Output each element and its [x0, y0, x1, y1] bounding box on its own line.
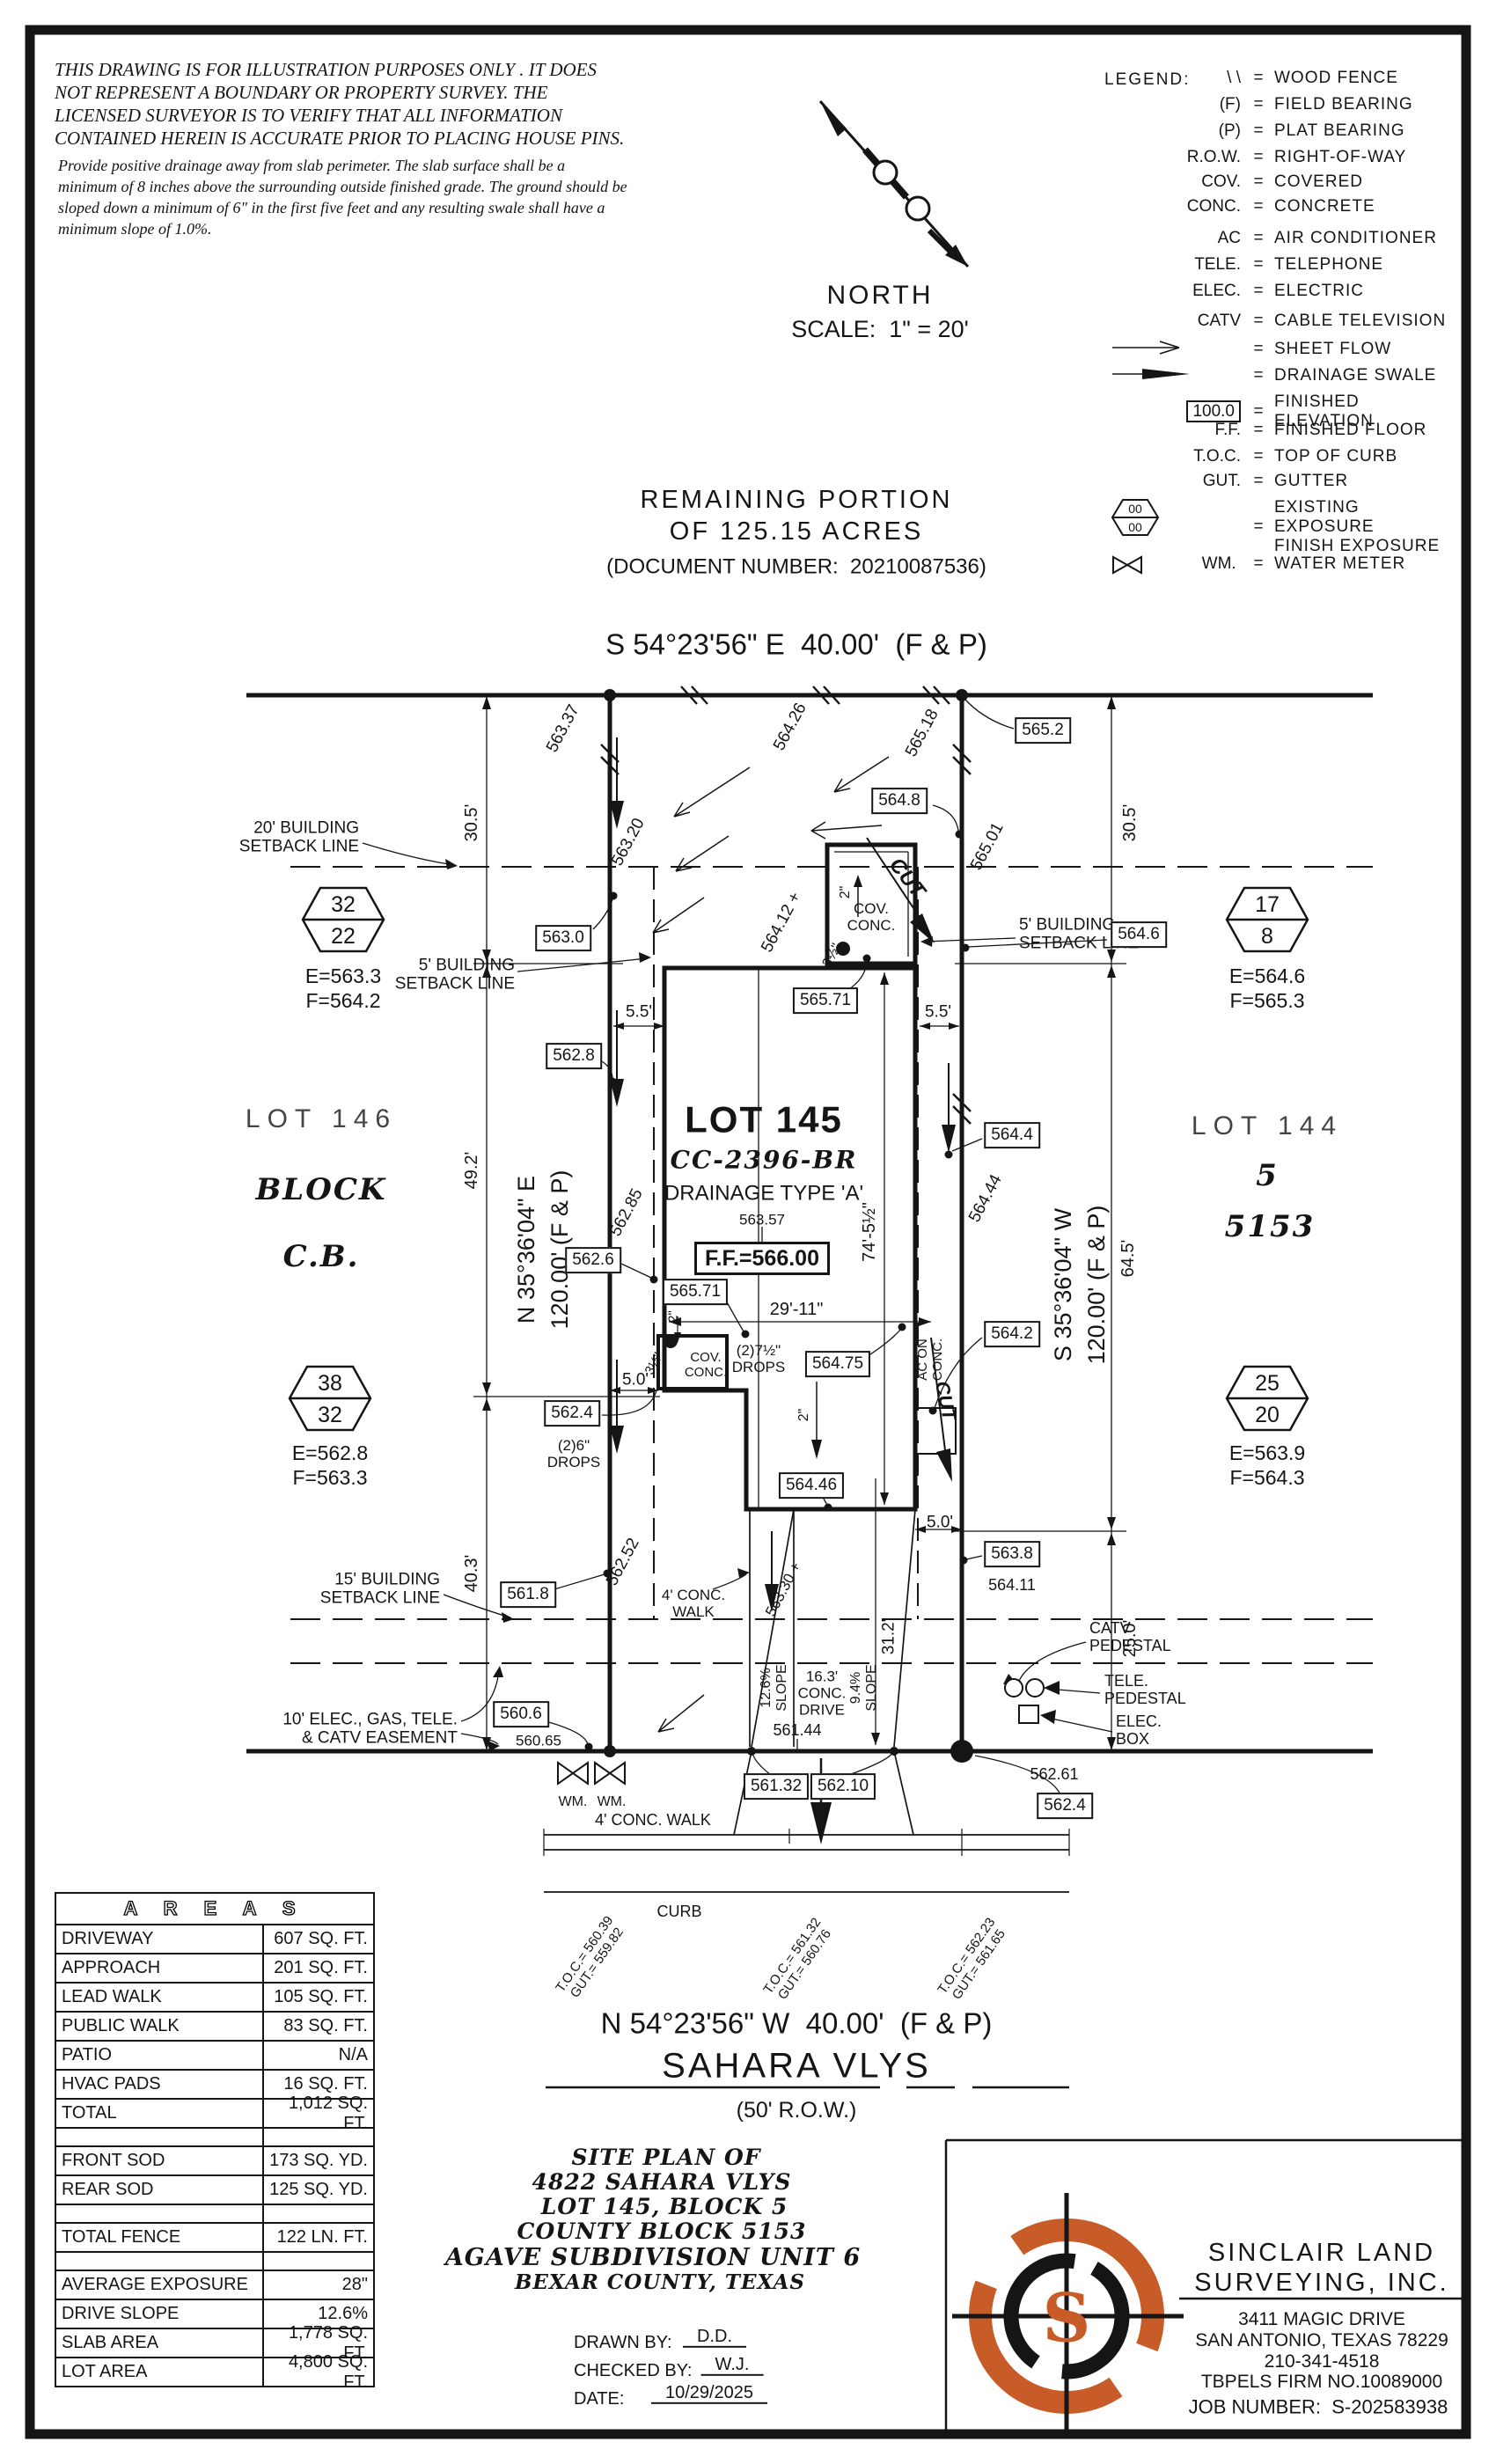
areas-row-value: 28" — [264, 2275, 373, 2295]
plan-label: 64.5' — [1118, 1240, 1138, 1278]
plan-label: TBPELS FIRM NO.10089000 — [1201, 2372, 1442, 2393]
areas-table-title: A R E A S — [56, 1894, 373, 1925]
plan-label: sloped down a minimum of 6" in the first… — [58, 199, 605, 216]
plan-label: DATE: — [574, 2389, 624, 2409]
plan-label: REMAINING PORTION — [641, 486, 953, 514]
finished-elevation-box: 100.0 — [1186, 400, 1241, 422]
plan-label: LOT 145 — [685, 1098, 843, 1140]
plan-label: 5.0' — [622, 1370, 649, 1389]
plan-label: 15' BUILDING SETBACK LINE — [320, 1571, 440, 1609]
plan-label: 561.8 — [500, 1581, 556, 1608]
plan-label: CHECKED BY: — [574, 2361, 692, 2380]
cov-abbr: COV. — [1111, 172, 1243, 192]
areas-row-label: SLAB AREA — [56, 2329, 264, 2357]
plan-label: 10/29/2025 — [651, 2383, 767, 2404]
plan-label: 563.0 — [535, 925, 591, 951]
areas-row-label: FRONT SOD — [56, 2147, 264, 2174]
areas-row-value: 16 SQ. FT. — [264, 2074, 373, 2094]
plan-label: COV. CONC. — [847, 900, 896, 934]
plan-label: T.O.C.= 560.39 GUT.= 559.82 — [554, 1914, 629, 2004]
areas-table-row: LOT AREA 4,800 SQ. FT. — [56, 2358, 373, 2386]
plan-label: 563.8 — [984, 1541, 1040, 1567]
plan-label: BLOCK — [256, 1173, 387, 1206]
areas-row-value: 83 SQ. FT. — [264, 2016, 373, 2036]
plan-label: 32 — [318, 1403, 342, 1427]
plan-label: AC ON CONC. — [916, 1338, 946, 1381]
plan-label: CC-2396-BR — [671, 1146, 858, 1173]
plan-label: 562.6 — [565, 1247, 621, 1273]
plan-label: SCALE: 1" = 20' — [791, 316, 969, 342]
areas-table-row — [56, 2253, 373, 2271]
plan-label: 2" — [838, 886, 854, 899]
plan-label: 562.61 — [1030, 1765, 1078, 1783]
plan-label: 5.5' — [925, 1002, 951, 1021]
plan-label: F=564.3 — [1229, 1467, 1304, 1490]
areas-row-label: REAR SOD — [56, 2176, 264, 2204]
plan-label: S — [1043, 2280, 1091, 2355]
plan-label: NORTH — [826, 281, 933, 311]
plan-label: 2" — [667, 1310, 682, 1323]
svg-text:00: 00 — [1128, 520, 1142, 534]
plan-label: THIS DRAWING IS FOR ILLUSTRATION PURPOSE… — [55, 60, 597, 81]
plan-label: WM. — [559, 1794, 588, 1810]
plan-label: S 35°36'04" W — [1050, 1208, 1076, 1361]
areas-table-row: LEAD WALK 105 SQ. FT. — [56, 1984, 373, 2013]
plan-label: F=565.3 — [1229, 990, 1304, 1013]
areas-table-row: FRONT SOD 173 SQ. YD. — [56, 2147, 373, 2176]
plan-label: N 54°23'56" W 40.00' (F & P) — [601, 2008, 993, 2041]
field-bearing-abbr: (F) — [1111, 95, 1243, 114]
plan-label: F=564.2 — [305, 990, 380, 1013]
plan-label: 563.30 + — [762, 1559, 804, 1619]
plan-label: SITE PLAN OF — [572, 2145, 761, 2170]
row-abbr: R.O.W. — [1111, 148, 1243, 167]
plan-label: 12.6% SLOPE — [759, 1664, 790, 1711]
plan-label: E=562.8 — [292, 1442, 368, 1465]
areas-table-row: PATIO N/A — [56, 2042, 373, 2071]
plan-label: 22 — [331, 924, 356, 949]
plan-label: 564.26 — [770, 700, 810, 753]
plan-label: NOT REPRESENT A BOUNDARY OR PROPERTY SUR… — [55, 83, 547, 104]
areas-row-label: AVERAGE EXPOSURE — [56, 2271, 264, 2299]
plan-label: 30.5' — [1120, 804, 1140, 842]
plan-label: 40.3' — [462, 1555, 481, 1593]
plan-label: 561.32 — [744, 1773, 809, 1800]
water-meter-icon — [1111, 554, 1144, 576]
plan-label: LOT 146 — [246, 1104, 397, 1134]
plan-label: 5.5' — [626, 1002, 652, 1021]
areas-row-value: 201 SQ. FT. — [264, 1958, 373, 1978]
plan-label: (50' R.O.W.) — [737, 2098, 857, 2123]
wood-fence-icon: \ \ — [1111, 69, 1243, 88]
plan-label: 30.5' — [462, 804, 481, 842]
plan-label: SAN ANTONIO, TEXAS 78229 — [1195, 2330, 1448, 2351]
plan-label: 5' BUILDING SETBACK LINE — [395, 957, 515, 994]
areas-row-value: 1,012 SQ. FT. — [264, 2094, 373, 2134]
plan-label: 120.00' (F & P) — [1083, 1206, 1110, 1365]
plan-label: 9.4% SLOPE — [848, 1664, 880, 1711]
areas-row-label: DRIVE SLOPE — [56, 2300, 264, 2328]
plan-label: E=563.9 — [1229, 1442, 1305, 1465]
plan-label: SURVEYING, INC. — [1194, 2269, 1448, 2297]
plan-label: 8 — [1261, 924, 1273, 949]
plan-label: 563.57 — [739, 1211, 785, 1228]
areas-row-value: 12.6% — [264, 2304, 373, 2324]
plan-label: CUT — [930, 1379, 959, 1422]
plan-label: 25 — [1255, 1371, 1280, 1396]
plan-label: 3411 MAGIC DRIVE — [1238, 2309, 1405, 2330]
toc-abbr: T.O.C. — [1111, 447, 1243, 466]
areas-row-label: PUBLIC WALK — [56, 2013, 264, 2040]
plan-label: 564.12 + — [758, 889, 805, 956]
ff-abbr: F.F. — [1111, 421, 1243, 440]
plan-label: 564.4 — [984, 1122, 1040, 1148]
plan-label: CONTAINED HEREIN IS ACCURATE PRIOR TO PL… — [55, 128, 624, 150]
areas-row-label: TOTAL — [56, 2100, 264, 2127]
plan-label: JOB NUMBER: S-202583938 — [1189, 2397, 1448, 2419]
plan-label: 5153 — [1225, 1210, 1316, 1243]
plan-label: 562.85 — [606, 1185, 647, 1239]
areas-row-label: APPROACH — [56, 1954, 264, 1982]
areas-table-row — [56, 2205, 373, 2224]
plan-label: N 35°36'04" E — [513, 1176, 539, 1324]
plan-label: F=563.3 — [292, 1467, 367, 1490]
plan-label: E=563.3 — [305, 965, 381, 988]
plan-label: 565.71 — [663, 1279, 728, 1305]
plan-label: 560.65 — [516, 1732, 561, 1749]
plan-label: WM. — [598, 1794, 627, 1810]
plan-label: COV. CONC. — [685, 1351, 727, 1381]
plan-label: COUNTY BLOCK 5153 — [517, 2219, 807, 2244]
areas-table-row: TOTAL FENCE 122 LN. FT. — [56, 2224, 373, 2253]
plan-label: 5.0' — [927, 1513, 953, 1531]
areas-row-label — [56, 2129, 264, 2145]
areas-table-row: DRIVEWAY 607 SQ. FT. — [56, 1925, 373, 1954]
plan-label: 20 — [1255, 1403, 1280, 1427]
plan-label: 562.4 — [544, 1400, 600, 1426]
plan-label: 49.2' — [462, 1152, 481, 1190]
plan-label: (2)7½" DROPS — [732, 1342, 785, 1375]
plan-label: SAHARA VLYS — [662, 2047, 931, 2086]
plan-label: Provide positive drainage away from slab… — [58, 157, 565, 174]
plan-label: 564.2 — [984, 1321, 1040, 1347]
areas-table-row: AVERAGE EXPOSURE 28" — [56, 2271, 373, 2300]
plan-label: T.O.C.= 561.32 GUT.= 560.76 — [761, 1916, 837, 2006]
plan-label: 210-341-4518 — [1265, 2351, 1380, 2372]
plan-label: (DOCUMENT NUMBER: 20210087536) — [606, 556, 986, 580]
plan-label: 565.18 — [902, 706, 942, 759]
plan-label: 17 — [1255, 892, 1280, 917]
plan-label: minimum of 8 inches above the surroundin… — [58, 178, 627, 195]
areas-row-value: 105 SQ. FT. — [264, 1987, 373, 2007]
areas-table: A R E A S DRIVEWAY 607 SQ. FT. APPROACH … — [55, 1892, 375, 2387]
areas-row-value: 125 SQ. YD. — [264, 2180, 373, 2200]
plan-label: 564.75 — [805, 1351, 870, 1377]
plan-label: F.F.=566.00 — [694, 1242, 830, 1275]
areas-table-row: TOTAL 1,012 SQ. FT. — [56, 2100, 373, 2129]
plan-label: LICENSED SURVEYOR IS TO VERIFY THAT ALL … — [55, 106, 562, 127]
plan-label: D.D. — [683, 2327, 746, 2348]
conc-abbr: CONC. — [1111, 197, 1243, 216]
plan-label: 32 — [331, 892, 356, 917]
plan-label: 564.46 — [779, 1472, 844, 1499]
areas-row-label: LEAD WALK — [56, 1984, 264, 2011]
plan-label: S 54°23'56" E 40.00' (F & P) — [605, 629, 987, 662]
tele-abbr: TELE. — [1111, 255, 1243, 275]
plan-label: 29'-11" — [770, 1300, 824, 1319]
plan-label: 561.44 — [773, 1721, 821, 1739]
wm-abbr: WM. — [1202, 554, 1236, 573]
plan-label: 25.0' — [1120, 1620, 1140, 1658]
plan-label: AGAVE SUBDIVISION UNIT 6 — [445, 2245, 861, 2271]
plan-label: 10' ELEC., GAS, TELE. & CATV EASEMENT — [282, 1711, 458, 1749]
plan-label: 5 — [1256, 1159, 1279, 1192]
areas-row-value: 173 SQ. YD. — [264, 2151, 373, 2171]
plan-label: 38 — [318, 1371, 342, 1396]
plan-label: DRAINAGE TYPE 'A' — [664, 1183, 863, 1206]
areas-row-value: 4,800 SQ. FT. — [264, 2352, 373, 2393]
plan-label: BEXAR COUNTY, TEXAS — [515, 2271, 805, 2294]
plan-label: CURB — [656, 1903, 701, 1920]
plan-label: C.B. — [283, 1240, 360, 1273]
plan-label: SINCLAIR LAND — [1208, 2239, 1435, 2267]
areas-row-value: 122 LN. FT. — [264, 2227, 373, 2248]
plan-label: TELE. PEDESTAL — [1104, 1672, 1186, 1707]
plan-label: 565.01 — [967, 819, 1008, 873]
areas-row-label — [56, 2205, 264, 2222]
plan-label: minimum slope of 1.0%. — [58, 220, 212, 238]
plan-label: 3½" — [820, 941, 846, 970]
plan-label: 562.52 — [603, 1535, 643, 1588]
areas-row-value: N/A — [264, 2045, 373, 2065]
plan-label: 565.2 — [1015, 717, 1071, 744]
areas-row-label: LOT AREA — [56, 2358, 264, 2386]
plan-label: (2)6" DROPS — [547, 1437, 600, 1470]
plan-label: 2" — [796, 1409, 812, 1422]
areas-table-row: APPROACH 201 SQ. FT. — [56, 1954, 373, 1984]
areas-table-row: REAR SOD 125 SQ. YD. — [56, 2176, 373, 2205]
areas-row-label: DRIVEWAY — [56, 1925, 264, 1953]
plan-label: 562.8 — [546, 1043, 602, 1069]
plat-bearing-abbr: (P) — [1111, 121, 1243, 141]
plan-label: E=564.6 — [1229, 965, 1305, 988]
plan-label: T.O.C.= 562.23 GUT.= 561.65 — [935, 1916, 1011, 2006]
plan-label: OF 125.15 ACRES — [670, 517, 923, 546]
plan-label: 564.8 — [871, 788, 928, 814]
plan-label: DRAWN BY: — [574, 2333, 672, 2352]
ac-abbr: AC — [1111, 229, 1243, 248]
survey-site-plan-sheet: THIS DRAWING IS FOR ILLUSTRATION PURPOSE… — [0, 0, 1496, 2464]
legend-desc: WOOD FENCE — [1274, 69, 1463, 88]
catv-abbr: CATV — [1111, 312, 1243, 331]
plan-label: 4' CONC. WALK — [595, 1811, 711, 1829]
areas-row-value: 607 SQ. FT. — [264, 1929, 373, 1949]
areas-table-row: PUBLIC WALK 83 SQ. FT. — [56, 2013, 373, 2042]
plan-label: 563.20 — [608, 815, 649, 869]
areas-row-label: TOTAL FENCE — [56, 2224, 264, 2251]
svg-text:00: 00 — [1128, 502, 1142, 516]
plan-label: 560.6 — [493, 1701, 549, 1727]
areas-row-label: PATIO — [56, 2042, 264, 2069]
plan-label: 563.37 — [543, 701, 583, 755]
plan-label: 564.11 — [988, 1576, 1036, 1594]
plan-label: 4822 SAHARA VLYS — [532, 2170, 792, 2195]
plan-label: 74'-5½" — [860, 1202, 879, 1262]
areas-row-label — [56, 2253, 264, 2270]
plan-label: 20' BUILDING SETBACK LINE — [239, 819, 359, 857]
plan-label: LOT 144 — [1192, 1111, 1343, 1141]
plan-label: 564.44 — [965, 1171, 1006, 1225]
gut-abbr: GUT. — [1111, 472, 1243, 491]
plan-label: 4' CONC. WALK — [662, 1587, 725, 1620]
plan-label: 31.2' — [879, 1619, 898, 1655]
plan-label: 564.6 — [1111, 921, 1167, 948]
plan-label: 16.3' CONC. DRIVE — [798, 1668, 847, 1718]
plan-label: 565.71 — [793, 987, 858, 1014]
plan-label: 562.10 — [810, 1773, 876, 1800]
plan-label: W.J. — [701, 2355, 764, 2376]
plan-label: ELEC. BOX — [1116, 1712, 1162, 1748]
elec-abbr: ELEC. — [1111, 282, 1243, 301]
plan-label: 562.4 — [1037, 1793, 1093, 1819]
plan-label: CUT — [884, 854, 929, 902]
plan-label: LOT 145, BLOCK 5 — [541, 2195, 788, 2219]
areas-row-label: HVAC PADS — [56, 2071, 264, 2098]
